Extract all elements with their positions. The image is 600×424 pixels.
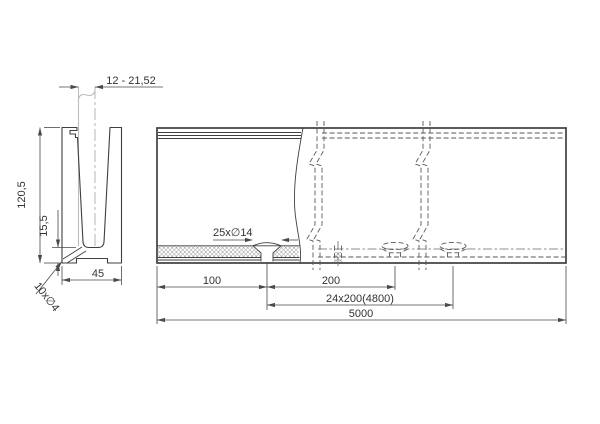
break-zigzag-1	[307, 121, 324, 270]
glass-pane-lines	[79, 87, 96, 246]
dim-drain-holes-label: 10x∅4	[31, 280, 61, 314]
glass-break-squiggle	[79, 91, 96, 99]
dim-total-length-label: 5000	[349, 308, 373, 320]
dim-anchor-holes: 25x∅14	[213, 227, 298, 242]
section-view	[62, 87, 122, 263]
dim-profile-height: 120,5	[16, 128, 60, 264]
dim-glass-range: 12 - 21,52	[59, 75, 163, 89]
dim-pitch-total: 24x200(4800)	[267, 293, 453, 307]
break-line-curve	[294, 128, 303, 263]
countersunk-hole-hidden-2	[440, 242, 466, 257]
dim-anchor-holes-label: 25x∅14	[213, 227, 253, 239]
dim-base-height-label: 15,5	[38, 215, 50, 236]
top-edge-lines	[158, 133, 565, 139]
profile-outline	[62, 128, 122, 264]
drawing-sheet: 12 - 21,52 120,5 15,5 45	[0, 0, 600, 424]
dim-base-width: 45	[62, 266, 122, 285]
dim-hole-pitch-label: 200	[322, 275, 340, 287]
break-zigzag-2	[413, 121, 430, 270]
dim-total-length: 5000	[157, 308, 566, 322]
dim-base-width-label: 45	[92, 268, 104, 280]
dimensions: 12 - 21,52 120,5 15,5 45	[16, 75, 566, 324]
countersunk-hole-hidden-1	[382, 242, 408, 257]
dim-pitch-total-label: 24x200(4800)	[326, 293, 394, 305]
technical-drawing: 12 - 21,52 120,5 15,5 45	[0, 0, 600, 424]
drain-hole-section	[63, 247, 86, 263]
dim-end-offset-label: 100	[203, 275, 221, 287]
profile-side-outline	[157, 128, 566, 263]
dim-profile-height-label: 120,5	[16, 181, 28, 209]
dim-end-offset: 100	[157, 275, 395, 289]
dim-glass-range-label: 12 - 21,52	[106, 75, 156, 87]
side-view	[157, 121, 566, 270]
